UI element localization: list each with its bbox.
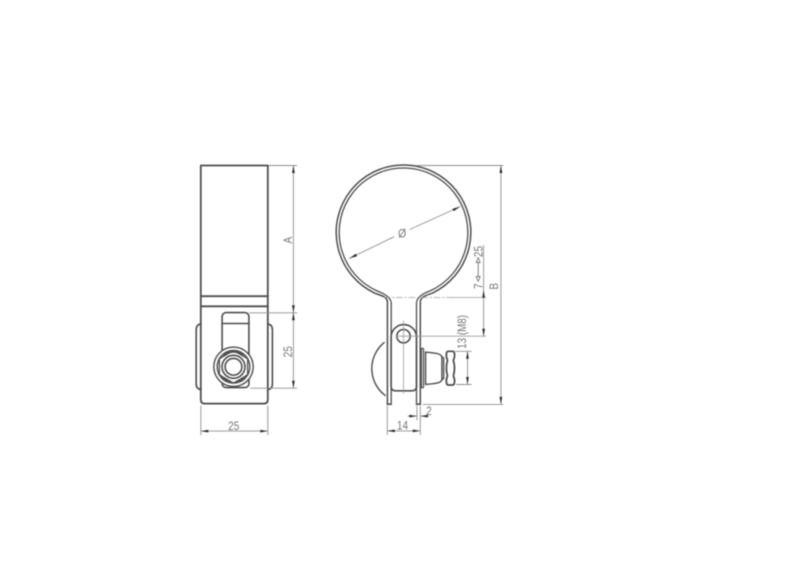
svg-text:2: 2 [426,405,432,418]
svg-text:Ø: Ø [398,228,407,241]
svg-text:25: 25 [473,246,486,257]
svg-text:14: 14 [397,420,408,433]
svg-text:13 (M8): 13 (M8) [456,315,469,349]
svg-text:25: 25 [282,346,295,357]
svg-text:B: B [488,283,501,290]
svg-text:25: 25 [228,420,239,433]
svg-text:A: A [282,236,295,243]
svg-text:7: 7 [473,283,486,289]
